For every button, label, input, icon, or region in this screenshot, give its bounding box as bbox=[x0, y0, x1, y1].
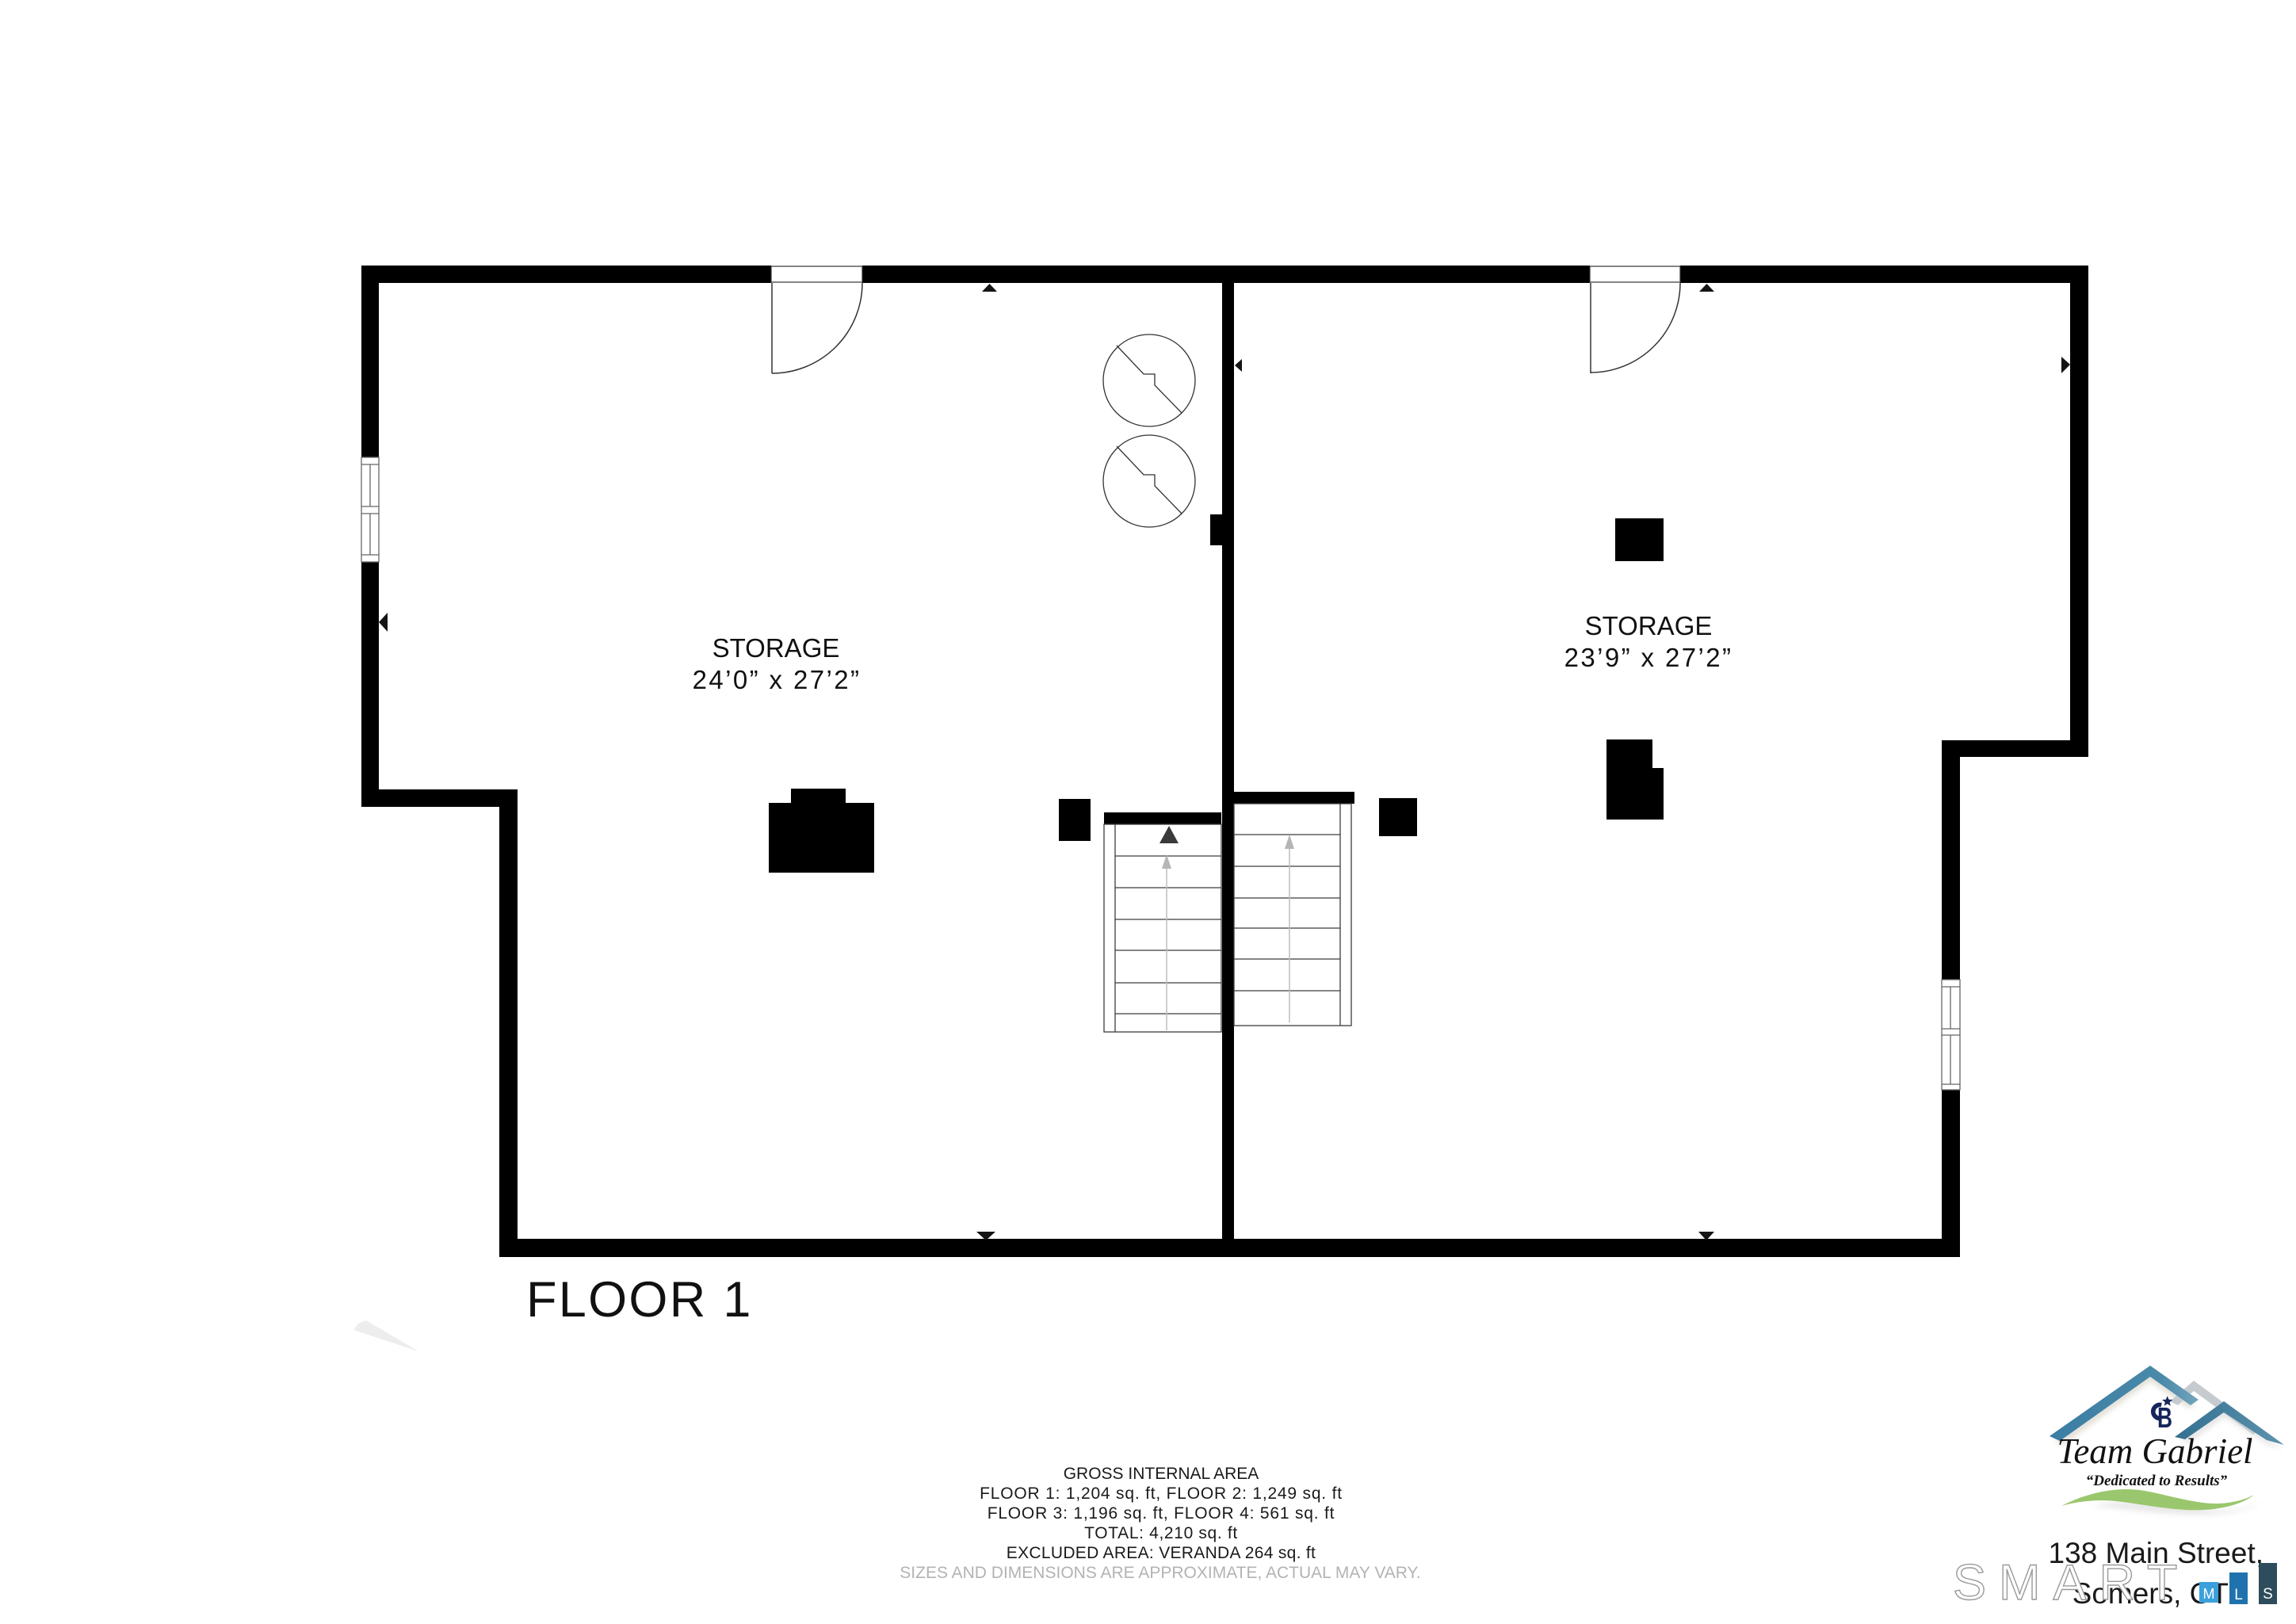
svg-text:FLOOR 3: 1,196 sq. ft, FLOOR 4: FLOOR 3: 1,196 sq. ft, FLOOR 4: 561 sq. … bbox=[988, 1504, 1335, 1523]
svg-text:23’9” x 27’2”: 23’9” x 27’2” bbox=[1564, 643, 1733, 672]
svg-text:FLOOR 1: 1,204 sq. ft, FLOOR 2: FLOOR 1: 1,204 sq. ft, FLOOR 2: 1,249 sq… bbox=[980, 1485, 1343, 1503]
svg-text:SIZES AND DIMENSIONS ARE APPRO: SIZES AND DIMENSIONS ARE APPROXIMATE, AC… bbox=[900, 1564, 1420, 1582]
svg-text:“Dedicated to Results”: “Dedicated to Results” bbox=[2086, 1473, 2228, 1489]
svg-text:24’0” x 27’2”: 24’0” x 27’2” bbox=[693, 665, 861, 694]
svg-text:EXCLUDED AREA: VERANDA 264 sq.: EXCLUDED AREA: VERANDA 264 sq. ft bbox=[1007, 1544, 1316, 1562]
svg-text:STORAGE: STORAGE bbox=[712, 633, 840, 663]
svg-text:STORAGE: STORAGE bbox=[1585, 611, 1713, 640]
svg-text:TOTAL: 4,210 sq. ft: TOTAL: 4,210 sq. ft bbox=[1084, 1524, 1238, 1542]
svg-text:SMART: SMART bbox=[1953, 1555, 2190, 1611]
svg-text:L: L bbox=[2234, 1587, 2243, 1603]
svg-text:B: B bbox=[2157, 1401, 2172, 1434]
svg-text:Team Gabriel: Team Gabriel bbox=[2057, 1431, 2252, 1471]
svg-text:GROSS INTERNAL AREA: GROSS INTERNAL AREA bbox=[1064, 1465, 1259, 1483]
svg-text:M: M bbox=[2203, 1586, 2215, 1602]
svg-text:S: S bbox=[2263, 1586, 2273, 1603]
svg-text:FLOOR 1: FLOOR 1 bbox=[526, 1272, 753, 1328]
